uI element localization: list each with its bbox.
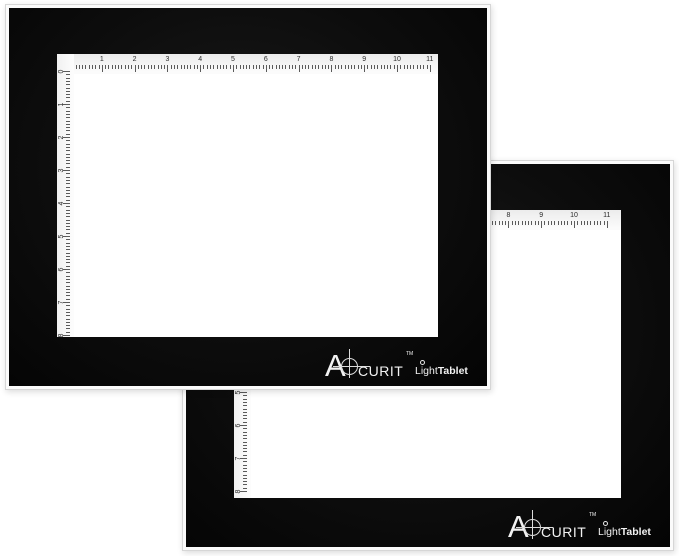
ruler-tick <box>66 160 70 161</box>
product-name: LightTablet <box>598 527 651 538</box>
ruler-tick <box>243 412 247 413</box>
ruler-tick <box>66 220 70 221</box>
ruler-tick <box>318 65 319 69</box>
ruler-tick <box>82 65 83 69</box>
ruler-tick <box>377 65 378 69</box>
ruler-tick <box>177 65 178 69</box>
ruler-tick <box>197 65 198 69</box>
ruler-tick <box>597 221 598 225</box>
ruler-tick <box>66 111 70 112</box>
ruler-tick <box>230 65 231 69</box>
ruler-tick <box>66 193 70 194</box>
ruler-tick <box>63 104 70 105</box>
ruler-tick <box>66 200 70 201</box>
ruler-tick <box>315 65 316 69</box>
ruler-tick <box>243 481 247 482</box>
ruler-tick <box>194 65 195 69</box>
tablet-frame: 01234567891011 012345678 A CURIT TM Ligh… <box>9 8 487 386</box>
ruler-top-number: 10 <box>393 55 401 64</box>
ruler-tick <box>381 65 382 69</box>
ruler-tick <box>181 65 182 69</box>
ruler-tick <box>66 328 70 329</box>
ruler-tick <box>272 65 273 69</box>
ruler-tick <box>144 65 145 69</box>
ruler-tick <box>269 65 270 69</box>
ruler-tick <box>305 65 306 69</box>
ruler-tick <box>210 65 211 69</box>
ruler-top: 01234567891011 <box>57 54 438 74</box>
ruler-tick <box>66 295 70 296</box>
compass-crosshair-vertical-icon <box>349 349 350 378</box>
compass-crosshair-vertical-icon <box>532 510 533 539</box>
ruler-tick <box>154 65 155 69</box>
ruler-tick <box>282 65 283 69</box>
ruler-tick <box>295 65 296 69</box>
ruler-tick <box>203 65 204 69</box>
product-name-light: Light <box>415 365 438 377</box>
ruler-tick <box>161 65 162 69</box>
ruler-tick <box>63 269 70 270</box>
ruler-tick <box>384 65 385 69</box>
ruler-tick <box>243 65 244 69</box>
ruler-tick <box>285 65 286 69</box>
ruler-tick <box>141 65 142 69</box>
ruler-tick <box>226 65 227 69</box>
ruler-top-number: 8 <box>329 55 333 64</box>
ruler-tick <box>66 289 70 290</box>
ruler-tick <box>325 65 326 69</box>
ruler-tick <box>243 409 247 410</box>
ruler-top-number: 4 <box>198 55 202 64</box>
ruler-tick <box>243 405 247 406</box>
ruler-tick <box>246 65 247 69</box>
ruler-tick <box>558 221 559 225</box>
ruler-tick <box>66 81 70 82</box>
ruler-tick <box>66 144 70 145</box>
ruler-tick <box>554 221 555 225</box>
ruler-tick <box>243 448 247 449</box>
ruler-top-number: 1 <box>100 55 104 64</box>
ruler-tick <box>66 206 70 207</box>
ruler-tick <box>328 65 329 69</box>
ruler-tick <box>551 221 552 225</box>
ruler-top-number: 3 <box>165 55 169 64</box>
ruler-tick <box>66 117 70 118</box>
ruler-tick <box>243 399 247 400</box>
ruler-tick <box>243 475 247 476</box>
ruler-tick <box>66 127 70 128</box>
product-name-tablet: Tablet <box>438 365 468 377</box>
ruler-tick <box>505 221 506 225</box>
ruler-tick <box>243 471 247 472</box>
ruler-tick <box>76 65 77 69</box>
ruler-tick <box>604 221 605 225</box>
ruler-tick <box>171 65 172 69</box>
ruler-tick <box>240 425 247 426</box>
ruler-tick <box>508 221 509 228</box>
ruler-tick <box>200 65 201 72</box>
ruler-tick <box>243 395 247 396</box>
trademark-symbol: TM <box>589 513 596 518</box>
ruler-tick <box>404 65 405 69</box>
ruler-tick <box>66 216 70 217</box>
ruler-tick <box>95 65 96 69</box>
ruler-tick <box>66 134 70 135</box>
ruler-tick <box>66 312 70 313</box>
ruler-tick <box>66 309 70 310</box>
drawing-surface: 01234567891011 012345678 <box>57 54 438 337</box>
ruler-tick <box>243 455 247 456</box>
ruler-tick <box>66 253 70 254</box>
ruler-top-number: 9 <box>362 55 366 64</box>
ruler-tick <box>351 65 352 69</box>
ruler-tick <box>525 221 526 225</box>
ruler-tick <box>66 88 70 89</box>
ruler-tick <box>108 65 109 69</box>
ruler-tick <box>243 422 247 423</box>
ruler-tick <box>66 183 70 184</box>
ruler-tick <box>66 322 70 323</box>
ruler-tick <box>66 233 70 234</box>
ruler-tick <box>518 221 519 225</box>
ruler-tick <box>243 465 247 466</box>
ruler-tick <box>66 223 70 224</box>
ruler-tick <box>66 121 70 122</box>
ruler-tick <box>66 266 70 267</box>
ruler-tick <box>240 458 247 459</box>
ruler-tick <box>243 428 247 429</box>
ruler-tick <box>263 65 264 69</box>
ruler-tick <box>299 65 300 72</box>
ruler-top-number: 2 <box>133 55 137 64</box>
ruler-tick <box>66 292 70 293</box>
ruler-tick <box>522 221 523 225</box>
ruler-tick <box>590 221 591 225</box>
ruler-tick <box>361 65 362 69</box>
ruler-tick <box>427 65 428 69</box>
ruler-tick <box>302 65 303 69</box>
ruler-top-number: 6 <box>264 55 268 64</box>
ruler-tick <box>66 130 70 131</box>
ruler-tick <box>66 107 70 108</box>
ruler-tick <box>184 65 185 69</box>
ruler-tick <box>322 65 323 69</box>
ruler-tick <box>587 221 588 225</box>
ruler-tick <box>390 65 391 69</box>
ruler-tick <box>190 65 191 69</box>
ruler-tick <box>276 65 277 69</box>
ruler-tick <box>423 65 424 69</box>
ruler-tick <box>131 65 132 69</box>
ruler-left: 012345678 <box>57 54 74 337</box>
ruler-tick <box>502 221 503 225</box>
product-name: LightTablet <box>415 366 468 377</box>
ruler-tick <box>367 65 368 69</box>
ruler-tick <box>544 221 545 225</box>
product-name-tablet: Tablet <box>621 526 651 538</box>
ruler-tick <box>66 229 70 230</box>
ruler-tick <box>66 124 70 125</box>
light-tablet-front: 01234567891011 012345678 A CURIT TM Ligh… <box>5 4 491 390</box>
ruler-tick <box>66 177 70 178</box>
ruler-tick <box>164 65 165 69</box>
ruler-tick <box>243 461 247 462</box>
ruler-tick <box>66 154 70 155</box>
ruler-tick <box>410 65 411 69</box>
ruler-tick <box>243 442 247 443</box>
ruler-tick <box>66 114 70 115</box>
ruler-tick <box>112 65 113 69</box>
ruler-tick <box>240 65 241 69</box>
ruler-tick <box>581 221 582 225</box>
ruler-tick <box>331 65 332 72</box>
ruler-tick <box>66 279 70 280</box>
ruler-tick <box>66 305 70 306</box>
ruler-tick <box>148 65 149 69</box>
ruler-tick <box>348 65 349 69</box>
ruler-tick <box>66 276 70 277</box>
ruler-tick <box>279 65 280 69</box>
ruler-tick <box>243 488 247 489</box>
ruler-tick <box>66 282 70 283</box>
ruler-tick <box>338 65 339 69</box>
ruler-tick <box>66 286 70 287</box>
ruler-tick <box>66 319 70 320</box>
ruler-tick <box>66 249 70 250</box>
ruler-tick <box>341 65 342 69</box>
ruler-tick <box>187 65 188 69</box>
ruler-tick <box>308 65 309 69</box>
brand-text: CURIT <box>358 364 403 378</box>
ruler-tick <box>387 65 388 69</box>
ruler-top-number: 7 <box>297 55 301 64</box>
product-name-light: Light <box>598 526 621 538</box>
ruler-tick <box>407 65 408 69</box>
ruler-tick <box>584 221 585 225</box>
ruler-tick <box>66 97 70 98</box>
ruler-tick <box>600 221 601 225</box>
acurit-logo: A CURIT TM LightTablet <box>508 510 644 542</box>
ruler-tick <box>567 221 568 225</box>
brand-text: CURIT <box>541 525 586 539</box>
acurit-logo: A CURIT TM LightTablet <box>325 349 461 381</box>
ruler-tick <box>63 137 70 138</box>
ruler-tick <box>85 65 86 69</box>
ruler-tick <box>266 65 267 72</box>
ruler-tick <box>528 221 529 225</box>
ruler-tick <box>607 221 608 228</box>
ruler-top-number: 10 <box>570 211 578 220</box>
ruler-tick <box>548 221 549 225</box>
ruler-tick <box>220 65 221 69</box>
ruler-tick <box>66 163 70 164</box>
ruler-tick <box>371 65 372 69</box>
ruler-tick <box>492 221 493 225</box>
ruler-tick <box>207 65 208 69</box>
ruler-tick <box>105 65 106 69</box>
ruler-tick <box>125 65 126 69</box>
ruler-tick <box>236 65 237 69</box>
ruler-tick <box>233 65 234 72</box>
ruler-tick <box>66 147 70 148</box>
ruler-tick <box>63 71 70 72</box>
ruler-tick <box>541 221 542 228</box>
ruler-tick <box>66 246 70 247</box>
ruler-tick <box>243 445 247 446</box>
ruler-tick <box>66 173 70 174</box>
ruler-tick <box>417 65 418 69</box>
ruler-tick <box>564 221 565 225</box>
ruler-tick <box>66 140 70 141</box>
ruler-tick <box>66 84 70 85</box>
ruler-top-number: 5 <box>231 55 235 64</box>
ruler-tick <box>574 221 575 228</box>
product-photo: { "product": { "brand_initial": "A", "br… <box>0 0 679 556</box>
ruler-tick <box>312 65 313 69</box>
ruler-tick <box>289 65 290 69</box>
ruler-tick <box>66 78 70 79</box>
ruler-tick <box>63 170 70 171</box>
ruler-tick <box>240 392 247 393</box>
ruler-tick <box>66 157 70 158</box>
ruler-tick <box>413 65 414 69</box>
ruler-tick <box>63 302 70 303</box>
ruler-tick <box>66 187 70 188</box>
ruler-tick <box>223 65 224 69</box>
ruler-tick <box>138 65 139 69</box>
ruler-tick <box>292 65 293 69</box>
ruler-tick <box>66 315 70 316</box>
ruler-tick <box>594 221 595 225</box>
ruler-top-number: 8 <box>506 211 510 220</box>
ruler-tick <box>121 65 122 69</box>
ruler-tick <box>243 468 247 469</box>
ruler-tick <box>217 65 218 69</box>
ruler-tick <box>499 221 500 225</box>
ruler-tick <box>158 65 159 69</box>
ruler-tick <box>243 432 247 433</box>
ruler-tick <box>394 65 395 69</box>
ruler-tick <box>66 332 70 333</box>
ruler-tick <box>66 239 70 240</box>
ruler-tick <box>66 210 70 211</box>
ruler-tick <box>66 196 70 197</box>
ruler-tick <box>561 221 562 225</box>
ruler-tick <box>243 415 247 416</box>
ruler-tick <box>167 65 168 72</box>
ruler-tick <box>420 65 421 69</box>
ruler-tick <box>99 65 100 69</box>
ruler-top-number: 11 <box>426 55 433 64</box>
ruler-tick <box>243 438 247 439</box>
ruler-tick <box>118 65 119 69</box>
ruler-tick <box>240 491 247 492</box>
ruler-tick <box>66 150 70 151</box>
ruler-tick <box>515 221 516 225</box>
ruler-tick <box>66 190 70 191</box>
ruler-tick <box>66 226 70 227</box>
ruler-tick <box>102 65 103 72</box>
ruler-tick <box>66 213 70 214</box>
ruler-tick <box>79 65 80 69</box>
trademark-symbol: TM <box>406 352 413 357</box>
ruler-tick <box>92 65 93 69</box>
ruler-tick <box>243 478 247 479</box>
ruler-tick <box>243 451 247 452</box>
ruler-tick <box>243 402 247 403</box>
ruler-tick <box>66 256 70 257</box>
ruler-tick <box>66 243 70 244</box>
ruler-tick <box>213 65 214 69</box>
ruler-tick <box>259 65 260 69</box>
ruler-tick <box>66 299 70 300</box>
ruler-tick <box>354 65 355 69</box>
ruler-top-number: 9 <box>539 211 543 220</box>
ruler-top-number: 11 <box>603 211 610 220</box>
ruler-tick <box>63 203 70 204</box>
ruler-tick <box>512 221 513 225</box>
ruler-tick <box>577 221 578 225</box>
ruler-tick <box>66 325 70 326</box>
ruler-tick <box>66 272 70 273</box>
ruler-tick <box>531 221 532 225</box>
ruler-tick <box>430 65 431 72</box>
ruler-tick <box>335 65 336 69</box>
ruler-tick <box>151 65 152 69</box>
ruler-tick <box>66 91 70 92</box>
ruler-tick <box>66 180 70 181</box>
ruler-tick <box>400 65 401 69</box>
ruler-tick <box>397 65 398 72</box>
ruler-tick <box>66 101 70 102</box>
ruler-tick <box>535 221 536 225</box>
ruler-tick <box>89 65 90 69</box>
ruler-tick <box>243 484 247 485</box>
ruler-tick <box>174 65 175 69</box>
ruler-tick <box>243 435 247 436</box>
ruler-tick <box>66 74 70 75</box>
ruler-tick <box>364 65 365 72</box>
ruler-tick <box>495 221 496 225</box>
ruler-tick <box>66 167 70 168</box>
ruler-tick <box>243 418 247 419</box>
ruler-tick <box>115 65 116 69</box>
ruler-tick <box>63 335 70 336</box>
ruler-tick <box>128 65 129 69</box>
ruler-tick <box>538 221 539 225</box>
ruler-tick <box>571 221 572 225</box>
ruler-tick <box>66 262 70 263</box>
ruler-tick <box>374 65 375 69</box>
ruler-tick <box>345 65 346 69</box>
ruler-tick <box>253 65 254 69</box>
ruler-tick <box>249 65 250 69</box>
ruler-tick <box>66 259 70 260</box>
ruler-tick <box>256 65 257 69</box>
ruler-tick <box>66 94 70 95</box>
ruler-tick <box>63 236 70 237</box>
ruler-tick <box>135 65 136 72</box>
ruler-tick <box>358 65 359 69</box>
